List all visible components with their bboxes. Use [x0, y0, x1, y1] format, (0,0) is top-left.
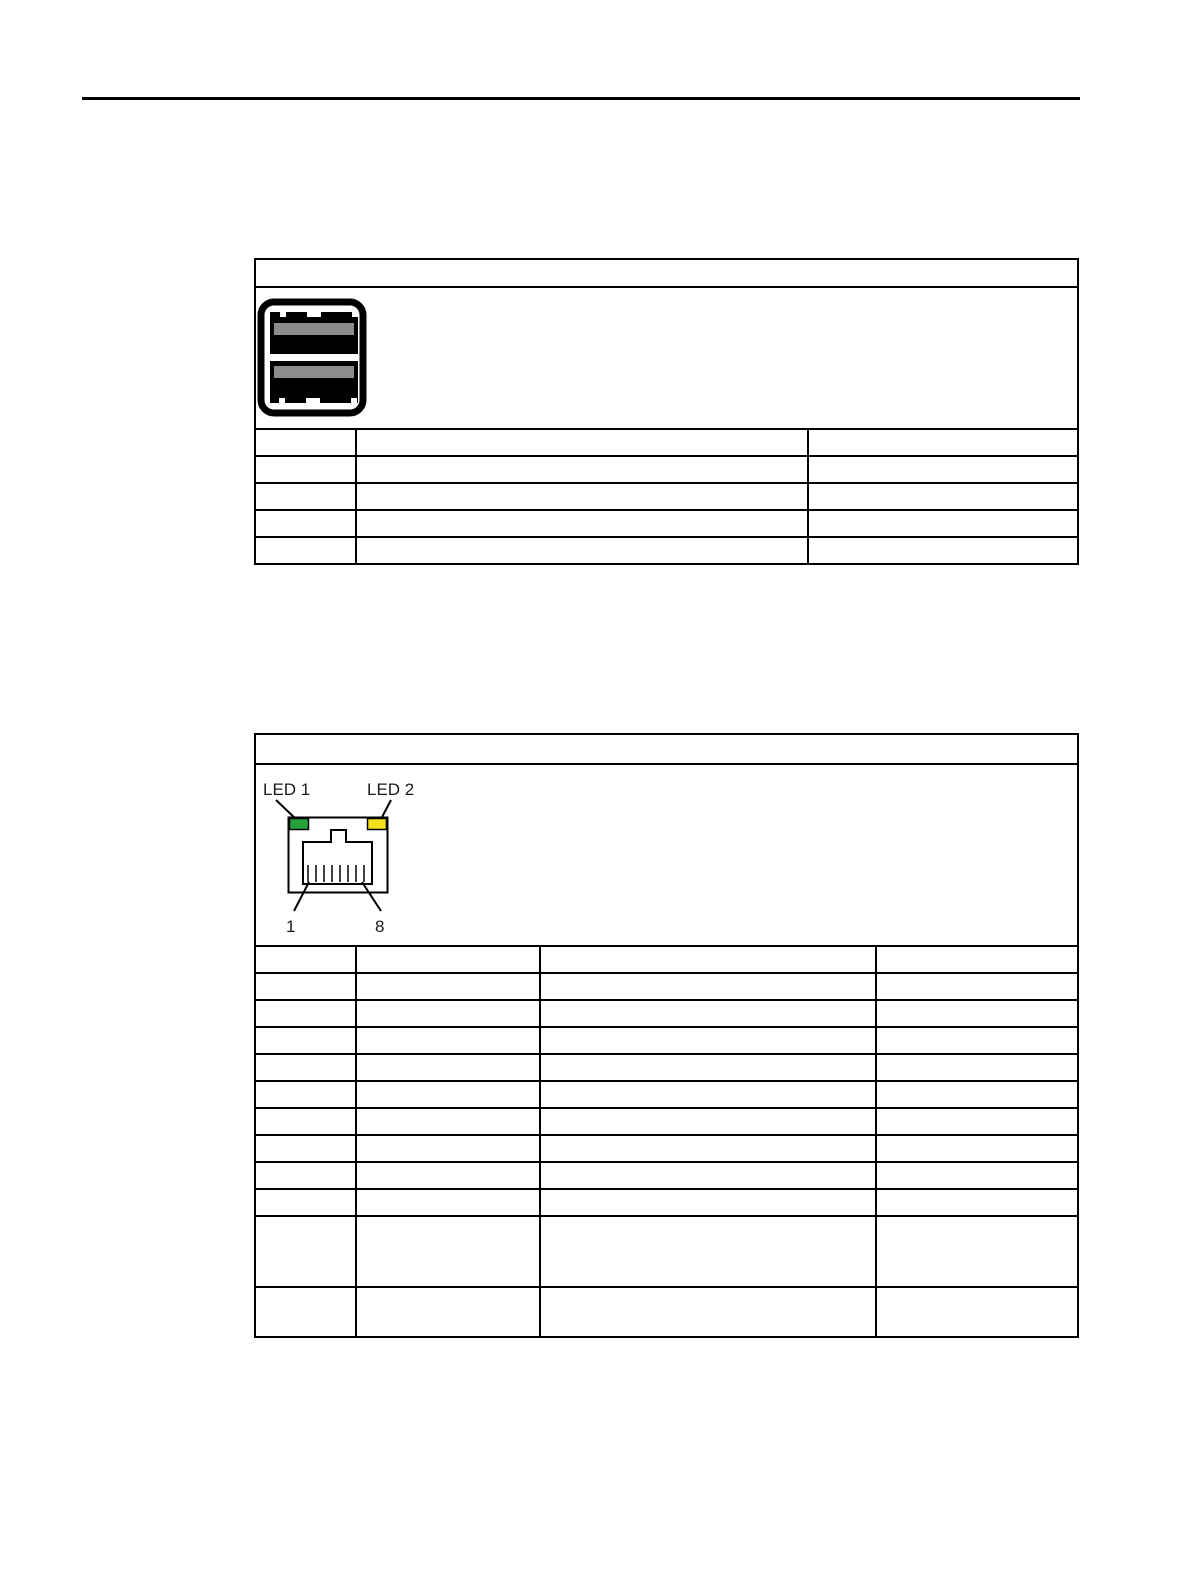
- table-cell: [356, 1162, 540, 1189]
- table-row: [255, 734, 1078, 764]
- led1-label: LED 1: [263, 780, 310, 799]
- table-cell: [876, 1000, 1078, 1027]
- table-cell: [356, 429, 808, 456]
- usb-dual-port-icon: [254, 294, 374, 419]
- table-row: [255, 510, 1078, 537]
- table-cell: [255, 973, 356, 1000]
- table-cell: [876, 1189, 1078, 1216]
- led2-indicator: [368, 819, 387, 830]
- table-cell: [876, 1216, 1078, 1287]
- table-row: [255, 1081, 1078, 1108]
- table-cell: [356, 973, 540, 1000]
- table-cell: [255, 483, 356, 510]
- table-row: [255, 287, 1078, 429]
- table-cell: [356, 1054, 540, 1081]
- table-cell: [876, 1135, 1078, 1162]
- usb-port-bottom: [270, 361, 358, 403]
- table-row: [255, 456, 1078, 483]
- table-row: [255, 1189, 1078, 1216]
- table-cell: [540, 1027, 876, 1054]
- led2-label: LED 2: [367, 780, 414, 799]
- table-cell: [255, 1216, 356, 1287]
- ethernet-table-header-cell: [255, 734, 1078, 764]
- table-row: [255, 537, 1078, 564]
- table-cell: [876, 1287, 1078, 1337]
- table-row: [255, 1162, 1078, 1189]
- table-row: [255, 429, 1078, 456]
- table-cell: [356, 456, 808, 483]
- table-cell: [255, 1108, 356, 1135]
- table-cell: [876, 1054, 1078, 1081]
- document-page: LED 1 LED 2 1 8: [0, 0, 1191, 1587]
- table-cell: [255, 537, 356, 564]
- table-cell: [808, 510, 1078, 537]
- led1-indicator: [290, 819, 309, 830]
- table-row: [255, 1054, 1078, 1081]
- table-row: [255, 1027, 1078, 1054]
- table-cell: [356, 1287, 540, 1337]
- table-cell: [540, 1189, 876, 1216]
- usb-port-top: [270, 312, 358, 354]
- table-cell: [540, 1054, 876, 1081]
- page-header-rule: [82, 97, 1080, 100]
- table-cell: [876, 1108, 1078, 1135]
- table-cell: [255, 1027, 356, 1054]
- table-cell: [540, 1081, 876, 1108]
- table-cell: [255, 1287, 356, 1337]
- table-cell: [540, 1216, 876, 1287]
- table-cell: [876, 1162, 1078, 1189]
- table-row: [255, 946, 1078, 973]
- pin1-label: 1: [286, 917, 295, 936]
- table-cell: [356, 1027, 540, 1054]
- table-cell: [255, 456, 356, 483]
- table-cell: [540, 1287, 876, 1337]
- table-cell: [356, 1216, 540, 1287]
- table-cell: [540, 1135, 876, 1162]
- table-cell: [356, 1135, 540, 1162]
- table-row: [255, 1216, 1078, 1287]
- table-row: [255, 1287, 1078, 1337]
- table-cell: [255, 1000, 356, 1027]
- table-cell: [356, 946, 540, 973]
- table-cell: [808, 429, 1078, 456]
- table-cell: [540, 1000, 876, 1027]
- table-cell: [356, 1108, 540, 1135]
- table-row: [255, 1108, 1078, 1135]
- table-cell: [255, 946, 356, 973]
- table-cell: [808, 537, 1078, 564]
- table-cell: [255, 429, 356, 456]
- table-cell: [255, 1081, 356, 1108]
- table-cell: [540, 1162, 876, 1189]
- table-cell: [356, 537, 808, 564]
- table-cell: [808, 483, 1078, 510]
- usb-contact-bar: [274, 366, 354, 378]
- table-cell: [255, 1054, 356, 1081]
- table-cell: [540, 1108, 876, 1135]
- usb-table-header-cell: [255, 259, 1078, 287]
- table-cell: [808, 456, 1078, 483]
- table-row: [255, 1000, 1078, 1027]
- table-cell: [876, 1027, 1078, 1054]
- table-cell: [255, 510, 356, 537]
- table-row: [255, 1135, 1078, 1162]
- table-cell: [876, 946, 1078, 973]
- table-row: [255, 973, 1078, 1000]
- usb-icon-cell: [255, 287, 1078, 429]
- table-row: [255, 483, 1078, 510]
- table-cell: [356, 1000, 540, 1027]
- table-cell: [356, 1081, 540, 1108]
- table-cell: [255, 1162, 356, 1189]
- usb-contact-bar: [274, 323, 354, 335]
- pin8-label: 8: [375, 917, 384, 936]
- table-cell: [255, 1189, 356, 1216]
- table-cell: [356, 1189, 540, 1216]
- table-cell: [540, 973, 876, 1000]
- table-cell: [540, 946, 876, 973]
- table-cell: [356, 483, 808, 510]
- table-row: [255, 259, 1078, 287]
- table-cell: [356, 510, 808, 537]
- table-cell: [255, 1135, 356, 1162]
- rj45-connector-diagram: LED 1 LED 2 1 8: [256, 770, 441, 942]
- table-cell: [876, 973, 1078, 1000]
- usb-connector-table: [254, 258, 1079, 565]
- table-cell: [876, 1081, 1078, 1108]
